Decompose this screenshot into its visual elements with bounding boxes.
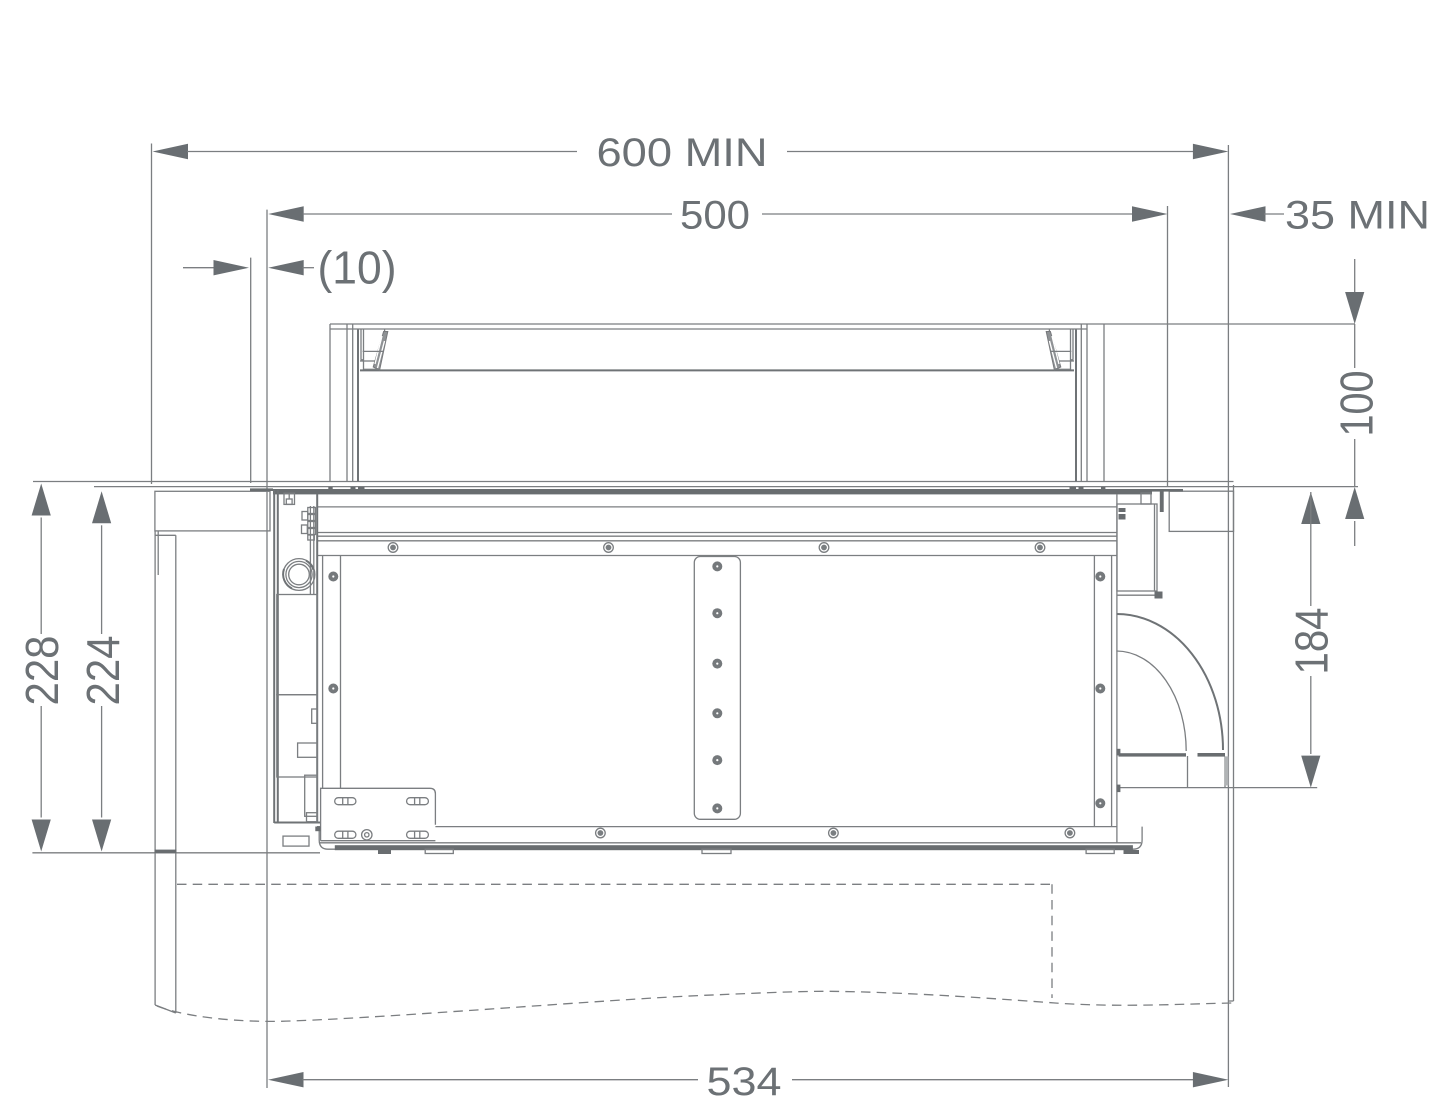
svg-text:184: 184 bbox=[1286, 608, 1338, 675]
svg-text:534: 534 bbox=[707, 1060, 782, 1104]
svg-text:228: 228 bbox=[16, 636, 68, 706]
svg-text:35 MIN: 35 MIN bbox=[1285, 194, 1430, 238]
svg-text:500: 500 bbox=[680, 194, 750, 238]
svg-text:100: 100 bbox=[1331, 371, 1383, 437]
svg-text:224: 224 bbox=[77, 636, 129, 706]
svg-text:(10): (10) bbox=[318, 243, 397, 294]
svg-text:600 MIN: 600 MIN bbox=[597, 131, 768, 175]
